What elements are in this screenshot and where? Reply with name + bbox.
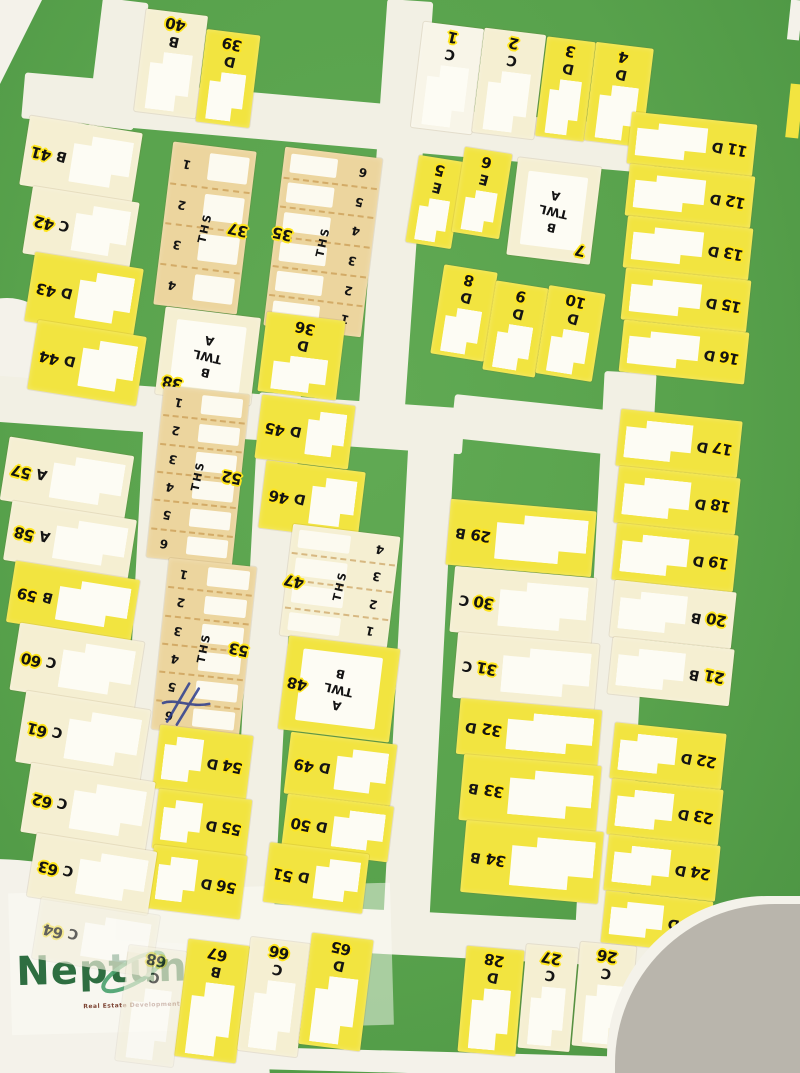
plot-type: D [289,423,303,439]
plot-28: 28D [457,946,524,1057]
plot-number: 64 [42,920,65,940]
plot-36: 36D [257,311,345,400]
unit-number: 3 [167,451,178,466]
plot-type: C [461,658,474,674]
plot-number: 60 [20,649,43,669]
villa-footprint-icon [63,709,142,770]
plot-number: 6 [480,153,493,170]
plot-type: E [478,171,491,187]
plot-type: D [676,806,690,822]
unit-number: 4 [164,480,175,495]
villa-footprint-icon [461,189,498,234]
page-corner-top-left [0,0,42,84]
plot-number: 56 [215,876,238,895]
plot-number: 16 [719,347,742,366]
plot-33: B33 [458,754,601,832]
plot-number: 1 [446,28,459,45]
site-plan-photo: 40B39D1C2C3D4D5E6EATWLB78D9D10D41B42C43D… [0,0,800,1073]
plot-type: B [454,525,467,541]
unit-number: 1 [364,623,375,639]
unit-number: 6 [358,164,369,180]
plot-number: 41 [30,143,53,163]
villa-footprint-icon [500,646,591,699]
unit-footprint-icon [192,274,235,306]
villa-footprint-icon [508,835,596,892]
plot-type: D [486,969,500,985]
plot-type: A [38,528,52,544]
plot-type: B [688,666,701,682]
plot-type: D [673,862,687,878]
plot-number: 22 [696,751,719,770]
plot-number: 12 [725,191,748,210]
unit-number: 5 [354,194,365,210]
plot-number: 13 [723,243,746,262]
plot-type: D [666,916,680,932]
villa-footprint-icon [527,986,566,1048]
plot-number: 26 [596,946,618,965]
plot-type: D [62,352,77,369]
unit-footprint-icon [289,153,338,178]
villa-footprint-icon [494,513,589,566]
plot-number: 59 [16,584,39,604]
plot-type: C [56,795,70,811]
villa-footprint-icon [333,747,389,796]
pen-scribble [159,675,216,732]
unit-number: 4 [169,651,180,666]
villa-footprint-icon [308,476,358,528]
plot-number: 45 [264,419,287,438]
unit-number: 1 [173,395,184,410]
plot-type: D [318,759,332,775]
plot-number: 18 [710,496,733,515]
plot-type: D [296,337,310,353]
unit-footprint-icon [197,424,240,447]
unit-number: 2 [170,423,181,438]
villa-footprint-icon [630,225,704,267]
plot-54: D54 [152,725,253,800]
unit-number: 4 [350,223,361,239]
plot-type: D [459,289,474,306]
unit-number: 1 [178,567,189,582]
plot-number: 62 [31,790,54,810]
plot-number: 46 [268,486,291,505]
unit-number: 2 [175,595,186,610]
plot-type: D [297,868,311,884]
plot-number: 24 [690,863,713,882]
plot-number: 52 [221,467,244,486]
plot-number: 34 [485,850,507,869]
plot-type: D [695,438,709,454]
villa-footprint-icon [492,322,533,372]
villa-footprint-icon [614,788,674,832]
plot-type: D [679,750,693,766]
villa-footprint-icon [304,410,348,458]
plot-type: D [464,719,478,735]
plot-type: D [204,817,218,833]
plot-39: 39D [196,29,261,128]
unit-number: 3 [172,623,183,638]
plot-type: C [45,654,59,670]
plot-number: 10 [564,291,587,311]
unit-footprint-icon [206,567,250,590]
plot-type: C [544,967,557,983]
villa-footprint-icon [611,844,671,888]
villa-footprint-icon [125,987,172,1062]
unit-number: 1 [181,157,192,173]
unit-footprint-icon [287,612,341,636]
plot-number: 43 [35,279,58,299]
plot-type: D [315,818,329,834]
villa-footprint-icon [414,197,450,244]
plot-number: 21 [704,667,727,686]
plot-number: 31 [476,658,498,677]
villa-footprint-icon [71,204,132,259]
plot-number: 29 [470,525,492,544]
plot-number: 68 [145,950,168,969]
plot-number: 39 [221,34,244,53]
villa-footprint-icon [544,78,582,136]
villa-footprint-icon [626,329,700,371]
unit-number: 2 [368,596,379,612]
plot-type: A [35,466,49,482]
plot-type: D [614,66,628,82]
villa-footprint-icon [69,781,148,840]
unit-footprint-icon [203,596,247,619]
plot-number: 42 [33,212,56,232]
plot-type: D [708,191,722,207]
unit-footprint-icon [285,183,334,208]
plot-type: B [469,849,482,865]
unit-number: 2 [176,197,187,213]
page-edge-top-right [787,0,800,41]
plot-number: 57 [10,461,33,481]
plot-48: BTWLA48 [278,636,401,743]
plot-type: B [209,963,223,979]
villa-footprint-icon [440,306,482,356]
plot-number: 27 [540,948,562,967]
plot-type: D [691,552,705,568]
edge-plot-sliver [785,83,800,138]
plot-type: C [148,969,161,985]
villa-footprint-icon [312,857,361,903]
plot-type: D [205,755,219,771]
villa-footprint-icon [634,121,708,163]
plot-number: 55 [220,818,243,837]
plot-number: 7 [574,242,587,259]
villa-footprint-icon [628,277,702,319]
plot-number: 47 [283,572,306,591]
plot-type: D [693,495,707,511]
villa-footprint-icon [309,975,358,1047]
plot-number: 65 [330,938,353,957]
plot-number: 58 [13,523,36,543]
plot-type: C [51,724,65,740]
plot-type: C [57,217,71,233]
plot-number: 19 [708,553,731,572]
unit-number: 4 [166,277,177,293]
plot-number: 2 [507,34,520,51]
unit-number: 3 [171,237,182,253]
villa-footprint-icon [185,981,235,1059]
villa-footprint-icon [52,517,129,569]
villa-footprint-icon [58,640,136,698]
unit-footprint-icon [189,508,232,531]
plot-number: 66 [268,942,291,961]
plot-number: 67 [206,944,229,963]
plot-type: C [67,925,81,941]
villa-footprint-icon [623,419,693,464]
villa-footprint-icon [615,647,686,693]
plot-type: C [62,862,76,878]
villa-footprint-icon [330,809,386,853]
plot-number: 9 [514,287,527,304]
villa-footprint-icon [505,711,594,756]
villa-footprint-icon [617,590,688,636]
villa-footprint-icon [621,476,691,521]
plot-number: 33 [483,781,505,800]
plot-type: D [704,295,718,311]
plot-type: B [467,780,480,796]
plot-number: 3 [564,42,577,59]
plot-number: 49 [293,755,316,774]
unit-footprint-icon [274,271,323,296]
plot-number: 5 [433,161,446,178]
plot-47: 4321THS47 [280,524,401,648]
villa-footprint-icon [155,855,199,903]
plot-29: B29 [445,499,596,577]
plot-type: C [271,961,284,977]
plot-number: 15 [721,295,744,314]
plot-type: E [431,179,444,195]
plot-number: 32 [481,719,503,738]
plot-type: D [511,305,526,322]
plot-type: D [293,490,307,506]
unit-number: 3 [371,569,382,585]
plot-number: 17 [712,439,735,458]
plot-10: 10D [535,285,605,382]
plot-type: D [199,875,213,891]
villa-footprint-icon [48,454,125,509]
plot-45: 45D [254,395,355,470]
plot-type: B [167,33,181,49]
plot-number: 36 [294,318,317,337]
plot-number: 44 [38,347,61,367]
plot-number: 28 [483,950,505,969]
villa-footprint-icon [75,850,149,904]
plot-37: 1234THS37 [153,141,256,314]
villa-footprint-icon [145,51,193,114]
plot-number: 35 [271,224,294,243]
plot-56: D56 [146,845,247,920]
plot-type: B [690,609,703,625]
villa-footprint-icon [421,64,469,130]
plot-type: D [561,60,575,76]
plot-type: D [702,347,716,363]
plot-number: 30 [473,592,495,611]
plot-number: 40 [165,14,188,33]
unit-footprint-icon [186,536,229,559]
plot-number: 11 [727,139,750,158]
plot-type: D [223,53,237,69]
villa-footprint-icon [74,270,135,327]
plot-number: 8 [462,271,475,288]
plot-type: D [706,243,720,259]
villa-footprint-icon [608,900,664,940]
plot-number: 61 [26,719,49,739]
plot-number: 23 [693,807,716,826]
plot-number: 53 [228,639,251,658]
villa-footprint-icon [161,735,205,783]
unit-number: 4 [374,542,385,558]
unit-footprint-icon [200,395,243,418]
villa-footprint-icon [468,987,512,1051]
unit-number: 2 [343,282,354,298]
plot-type: C [600,965,613,981]
plot-type: D [710,139,724,155]
plot-type: C [458,592,471,608]
plot-type: D [59,284,74,301]
plot-type: B [41,589,55,605]
plot-number: 50 [290,814,313,833]
unit-number: 3 [347,253,358,269]
unit-number: 6 [158,536,169,551]
unit-number: 5 [161,508,172,523]
villa-footprint-icon [617,732,677,776]
unit-footprint-icon [207,153,250,185]
plot-type: C [505,52,518,68]
plot-number: 37 [227,220,250,239]
plot-type: D [565,310,580,327]
plot-51: 51D [263,842,370,914]
villa-footprint-icon [497,580,588,633]
villa-footprint-icon [160,799,203,844]
plot-number: 48 [286,674,309,693]
plot-53: 123456THS53 [151,558,256,738]
plot-27: 27C [518,944,579,1052]
plot-number: 63 [37,857,60,877]
plot-2: 2C [472,28,546,140]
plot-number: 54 [221,756,244,775]
plot-number: 20 [706,610,729,629]
villa-footprint-icon [270,354,328,395]
villa-footprint-icon [619,533,689,578]
villa-footprint-icon [507,768,594,821]
plot-type: D [332,957,346,973]
plot-7: ATWLB7 [506,157,601,265]
villa-footprint-icon [77,338,138,395]
villa-footprint-icon [632,173,706,215]
plot-52: 123456THS52 [146,386,250,566]
plot-34: B34 [460,820,604,904]
plot-type: C [444,46,457,62]
villa-footprint-icon [546,327,590,376]
plot-type: B [54,148,68,164]
villa-footprint-icon [483,70,531,135]
unit-footprint-icon [298,530,352,554]
villa-footprint-icon [248,979,296,1052]
plot-number: 51 [272,864,295,883]
plot-number: 4 [617,48,630,65]
villa-footprint-icon [68,134,134,191]
villa-footprint-icon [205,71,246,123]
villa-footprint-icon [54,578,131,631]
plot-65: 65D [298,933,373,1052]
